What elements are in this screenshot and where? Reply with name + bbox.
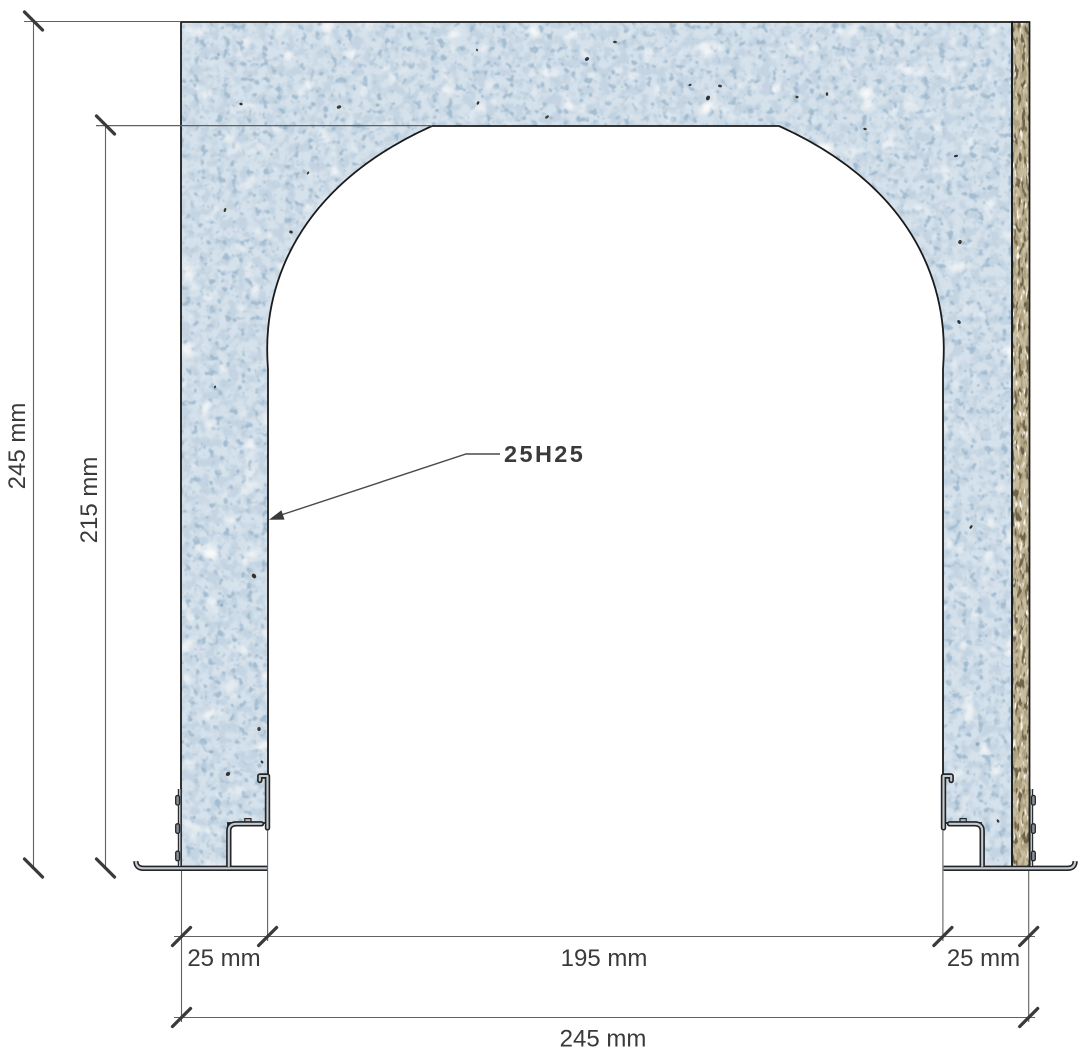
svg-text:25H25: 25H25 [504,441,585,467]
svg-text:245 mm: 245 mm [560,1026,647,1053]
svg-text:195 mm: 195 mm [561,945,648,972]
svg-text:215 mm: 215 mm [76,457,103,544]
svg-text:25 mm: 25 mm [947,945,1020,972]
svg-text:245 mm: 245 mm [4,403,31,490]
svg-text:25 mm: 25 mm [187,945,260,972]
